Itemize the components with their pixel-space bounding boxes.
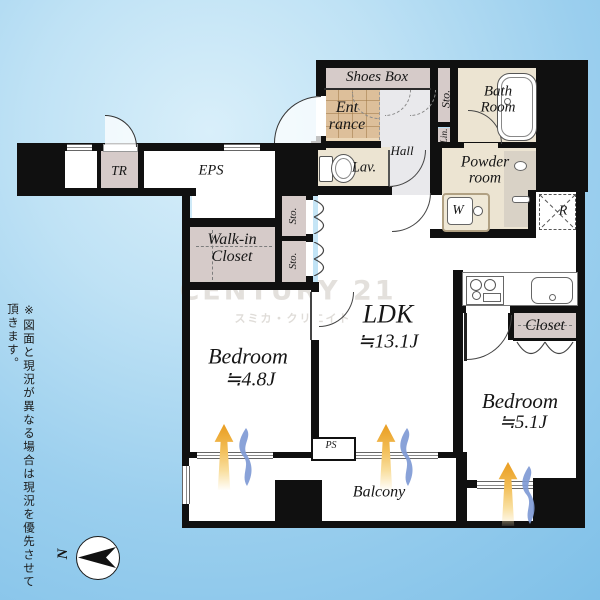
label-bath-line2: Room xyxy=(481,99,516,115)
basin-faucet-icon xyxy=(514,161,527,171)
label-ps: PS xyxy=(325,441,336,452)
wall xyxy=(311,186,393,195)
wall xyxy=(182,190,190,454)
window-balcony-side xyxy=(182,466,190,504)
label-bath-line1: Bath xyxy=(484,83,512,99)
compass-needle-icon xyxy=(77,546,117,569)
disclaimer-note: ※図面と現況が異なる場合は現況を優先させて頂きます。 xyxy=(5,303,37,593)
washer-knob xyxy=(473,206,483,216)
label-lin-strip: Lin. xyxy=(441,128,451,143)
label-wic-line1: Walk-in xyxy=(207,231,256,248)
label-lav: Lav. xyxy=(352,160,376,175)
label-walkin-closet: Walk-inCloset xyxy=(207,232,256,266)
label-ldk-size: ≒13.1J xyxy=(358,332,419,353)
label-bathroom: BathRoom xyxy=(481,84,516,116)
label-powder-line1: Powder xyxy=(461,154,509,171)
wall xyxy=(316,66,326,96)
label-eps: EPS xyxy=(199,163,224,178)
label-closet: Closet xyxy=(525,318,565,334)
label-powder-room: Powderroom xyxy=(461,155,509,188)
stove-grill xyxy=(483,293,501,302)
stove-burner xyxy=(484,279,496,291)
airflow-wave-icon xyxy=(399,428,417,486)
compass-north-label: N xyxy=(56,549,72,560)
door-gap xyxy=(306,200,313,234)
wall xyxy=(17,143,65,196)
wall xyxy=(462,480,477,488)
sink-drain xyxy=(549,294,556,301)
stove-burner xyxy=(470,279,482,291)
basin-handle-icon xyxy=(512,196,530,203)
wall xyxy=(182,503,189,525)
airflow-wave-icon xyxy=(521,466,539,524)
label-fridge: R xyxy=(559,205,568,220)
wall xyxy=(430,143,442,195)
label-sto1: Sto. xyxy=(288,208,300,225)
entry-door-arc xyxy=(274,96,321,143)
window xyxy=(224,144,260,151)
label-ldk: LDK xyxy=(363,300,414,327)
sto2-bifold-icon xyxy=(313,242,335,276)
window-ldk xyxy=(353,452,438,459)
label-sto2: Sto. xyxy=(288,253,300,270)
label-balcony: Balcony xyxy=(353,485,405,502)
airflow-wave-icon xyxy=(238,428,256,486)
label-bedroom2-size: ≒5.1J xyxy=(499,413,547,433)
label-powder-line2: room xyxy=(469,170,501,187)
toilet-seat xyxy=(335,158,352,179)
wall xyxy=(456,452,467,526)
label-entrance: Entrance xyxy=(329,100,365,134)
label-shoes-box: Shoes Box xyxy=(346,70,408,86)
label-bedroom1-size: ≒4.8J xyxy=(225,370,276,391)
label-washer: W xyxy=(452,203,463,217)
wall xyxy=(275,196,282,287)
fridge-space-icon xyxy=(539,194,576,230)
label-entrance-line1: Ent xyxy=(336,99,358,116)
tr-door-arc xyxy=(105,115,137,147)
wall xyxy=(97,150,101,190)
door-gap xyxy=(306,242,313,276)
label-sto-strip: Sto. xyxy=(440,90,453,108)
window xyxy=(67,144,92,151)
label-bedroom1: Bedroom xyxy=(208,344,288,367)
room-floor-meterbox xyxy=(65,150,97,188)
door-gap xyxy=(311,292,319,340)
entrance-hall-dotted-line xyxy=(379,92,380,140)
label-hall: Hall xyxy=(390,144,413,158)
wall xyxy=(275,480,322,524)
wall xyxy=(138,150,144,190)
door-gap xyxy=(466,306,510,313)
wall xyxy=(282,236,306,241)
label-bedroom2: Bedroom xyxy=(482,390,558,412)
floorplan-canvas: CENTURY 21 スミカ・クリエイト xyxy=(0,0,600,600)
wall xyxy=(182,282,319,290)
wall xyxy=(311,141,381,148)
label-wic-line2: Closet xyxy=(212,248,253,265)
label-tr: TR xyxy=(111,164,127,178)
wall xyxy=(536,60,588,192)
stove-burner xyxy=(472,291,481,300)
closet-bifold-icon xyxy=(516,341,574,363)
sto1-bifold-icon xyxy=(313,200,335,234)
fridge-x-lines xyxy=(540,195,575,229)
wall xyxy=(182,218,282,227)
room-floor-eps-ext xyxy=(192,189,277,219)
label-entrance-line2: rance xyxy=(329,116,365,133)
wall xyxy=(576,188,585,488)
bedroom1-door-leaf xyxy=(310,292,312,340)
window-bedroom1 xyxy=(197,452,273,459)
